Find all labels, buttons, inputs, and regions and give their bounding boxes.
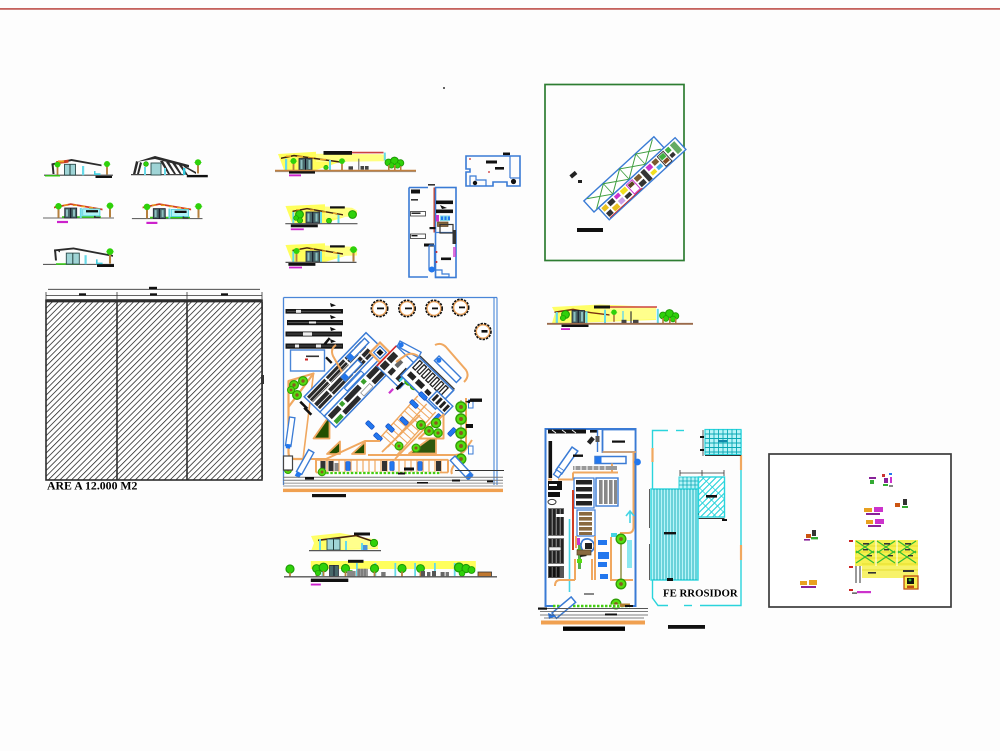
svg-text:ARE A 12.000 M2: ARE A 12.000 M2 [47, 479, 138, 493]
svg-text:FE RROSIDOR: FE RROSIDOR [663, 588, 738, 600]
